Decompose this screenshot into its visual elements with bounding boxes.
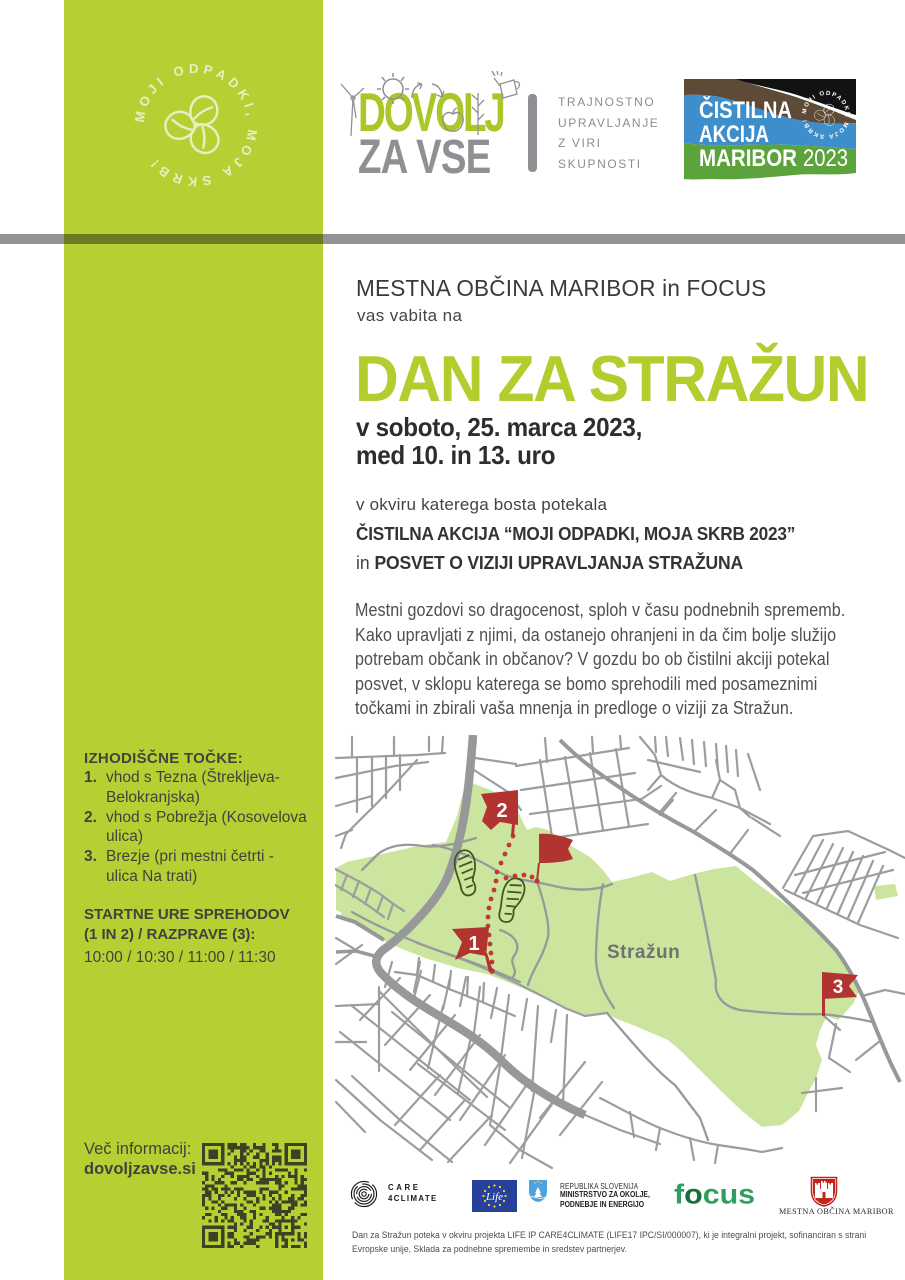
- svg-text:4CLIMATE: 4CLIMATE: [388, 1194, 438, 1203]
- svg-text:2023: 2023: [803, 145, 848, 172]
- svg-text:Life: Life: [485, 1191, 503, 1203]
- svg-text:MARIBOR: MARIBOR: [699, 145, 797, 172]
- svg-text:1: 1: [468, 933, 479, 955]
- svg-text:2: 2: [496, 800, 507, 822]
- svg-text:Stražun: Stražun: [607, 942, 680, 963]
- svg-text:ČISTILNA: ČISTILNA: [699, 96, 792, 124]
- svg-text:AKCIJA: AKCIJA: [699, 121, 769, 148]
- svg-text:CARE: CARE: [388, 1183, 421, 1192]
- svg-text:3: 3: [833, 977, 844, 998]
